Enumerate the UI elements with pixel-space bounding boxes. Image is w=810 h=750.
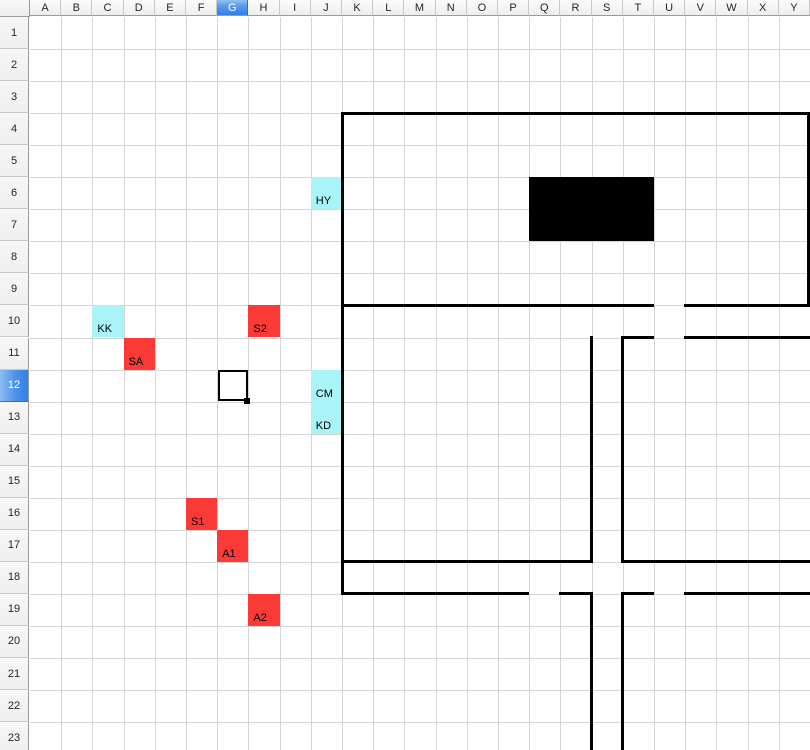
border-segment-horizontal: [341, 112, 810, 115]
gridline: [779, 17, 780, 750]
row-header-9[interactable]: 9: [0, 273, 29, 305]
border-segment-horizontal: [341, 304, 655, 307]
gridline: [186, 17, 187, 750]
gridline: [280, 17, 281, 750]
cell-f16[interactable]: S1: [186, 498, 217, 530]
border-segment-horizontal: [684, 592, 810, 595]
border-segment-vertical: [590, 336, 593, 563]
gridline: [30, 530, 810, 531]
col-header-p[interactable]: P: [498, 0, 529, 16]
col-header-g[interactable]: G: [217, 0, 248, 16]
col-header-m[interactable]: M: [404, 0, 435, 16]
gridline: [155, 17, 156, 750]
col-header-i[interactable]: I: [280, 0, 311, 16]
row-header-15[interactable]: 15: [0, 466, 29, 498]
fill-handle[interactable]: [244, 398, 250, 404]
gridline: [30, 49, 810, 50]
border-segment-horizontal: [341, 592, 530, 595]
border-segment-horizontal: [621, 560, 810, 563]
col-header-c[interactable]: C: [92, 0, 123, 16]
cell-h19[interactable]: A2: [248, 594, 279, 626]
spreadsheet: ABCDEFGHIJKLMNOPQRSTUVWXY 12345678910111…: [0, 0, 810, 750]
row-header-2[interactable]: 2: [0, 49, 29, 81]
gridline: [92, 17, 93, 750]
gridline: [30, 177, 810, 178]
gridline: [30, 690, 810, 691]
border-segment-horizontal: [621, 336, 654, 339]
select-all-corner[interactable]: [0, 0, 30, 17]
col-header-u[interactable]: U: [654, 0, 685, 16]
row-header-10[interactable]: 10: [0, 305, 29, 337]
col-header-x[interactable]: X: [748, 0, 779, 16]
cell-j13[interactable]: KD: [311, 402, 342, 434]
gridline: [30, 466, 810, 467]
gridline: [716, 17, 717, 750]
gridline: [30, 81, 810, 82]
cell-d11[interactable]: SA: [124, 338, 155, 370]
row-header-22[interactable]: 22: [0, 690, 29, 722]
col-header-y[interactable]: Y: [779, 0, 810, 16]
border-segment-vertical: [341, 112, 344, 596]
gridline: [560, 17, 561, 750]
gridline: [30, 273, 810, 274]
gridline: [248, 17, 249, 750]
row-header-19[interactable]: 19: [0, 594, 29, 626]
cell-j12[interactable]: CM: [311, 370, 342, 402]
border-segment-vertical: [590, 592, 593, 750]
gridline: [61, 17, 62, 750]
col-header-j[interactable]: J: [311, 0, 342, 16]
col-header-f[interactable]: F: [186, 0, 217, 16]
col-header-b[interactable]: B: [61, 0, 92, 16]
col-header-e[interactable]: E: [155, 0, 186, 16]
row-header-13[interactable]: 13: [0, 402, 29, 434]
col-header-d[interactable]: D: [124, 0, 155, 16]
gridline: [654, 17, 655, 750]
gridline: [30, 434, 810, 435]
col-header-a[interactable]: A: [30, 0, 61, 16]
cell-j6[interactable]: HY: [311, 177, 342, 209]
gridline: [529, 17, 530, 750]
cell-c10[interactable]: KK: [92, 305, 123, 337]
row-header-6[interactable]: 6: [0, 177, 29, 209]
gridline: [30, 209, 810, 210]
row-header-21[interactable]: 21: [0, 658, 29, 690]
row-header-4[interactable]: 4: [0, 113, 29, 145]
border-segment-horizontal: [559, 592, 592, 595]
col-header-v[interactable]: V: [685, 0, 716, 16]
row-header-23[interactable]: 23: [0, 722, 29, 750]
col-header-t[interactable]: T: [623, 0, 654, 16]
gridline: [30, 498, 810, 499]
row-header-3[interactable]: 3: [0, 81, 29, 113]
col-header-w[interactable]: W: [716, 0, 747, 16]
row-header-1[interactable]: 1: [0, 17, 29, 49]
row-header-14[interactable]: 14: [0, 434, 29, 466]
active-cell-border[interactable]: [218, 370, 248, 401]
col-header-l[interactable]: L: [373, 0, 404, 16]
gridline: [30, 626, 810, 627]
cell-g17[interactable]: A1: [217, 530, 248, 562]
border-segment-vertical: [621, 592, 624, 750]
row-header-17[interactable]: 17: [0, 530, 29, 562]
gridline: [748, 17, 749, 750]
row-header-18[interactable]: 18: [0, 562, 29, 594]
row-header-20[interactable]: 20: [0, 626, 29, 658]
row-header-11[interactable]: 11: [0, 338, 29, 370]
gridline: [436, 17, 437, 750]
gridline: [30, 722, 810, 723]
row-header-7[interactable]: 7: [0, 209, 29, 241]
gridline: [30, 241, 810, 242]
row-header-5[interactable]: 5: [0, 145, 29, 177]
border-segment-horizontal: [684, 336, 810, 339]
row-header-16[interactable]: 16: [0, 498, 29, 530]
col-header-q[interactable]: Q: [529, 0, 560, 16]
gridline: [30, 145, 810, 146]
gridline: [373, 17, 374, 750]
black-fill-region: [529, 177, 654, 241]
row-header-12[interactable]: 12: [0, 370, 29, 402]
col-header-o[interactable]: O: [467, 0, 498, 16]
gridline: [467, 17, 468, 750]
col-header-h[interactable]: H: [248, 0, 279, 16]
border-segment-vertical: [621, 336, 624, 563]
col-header-s[interactable]: S: [592, 0, 623, 16]
gridline: [124, 17, 125, 750]
col-header-n[interactable]: N: [436, 0, 467, 16]
border-segment-horizontal: [341, 560, 592, 563]
col-header-k[interactable]: K: [342, 0, 373, 16]
row-header-8[interactable]: 8: [0, 241, 29, 273]
col-header-r[interactable]: R: [560, 0, 591, 16]
gridline: [30, 402, 810, 403]
gridline: [498, 17, 499, 750]
border-segment-horizontal: [684, 304, 810, 307]
cell-h10[interactable]: S2: [248, 305, 279, 337]
gridline: [685, 17, 686, 750]
gridline: [404, 17, 405, 750]
gridline: [30, 370, 810, 371]
gridline: [30, 658, 810, 659]
border-segment-horizontal: [621, 592, 654, 595]
